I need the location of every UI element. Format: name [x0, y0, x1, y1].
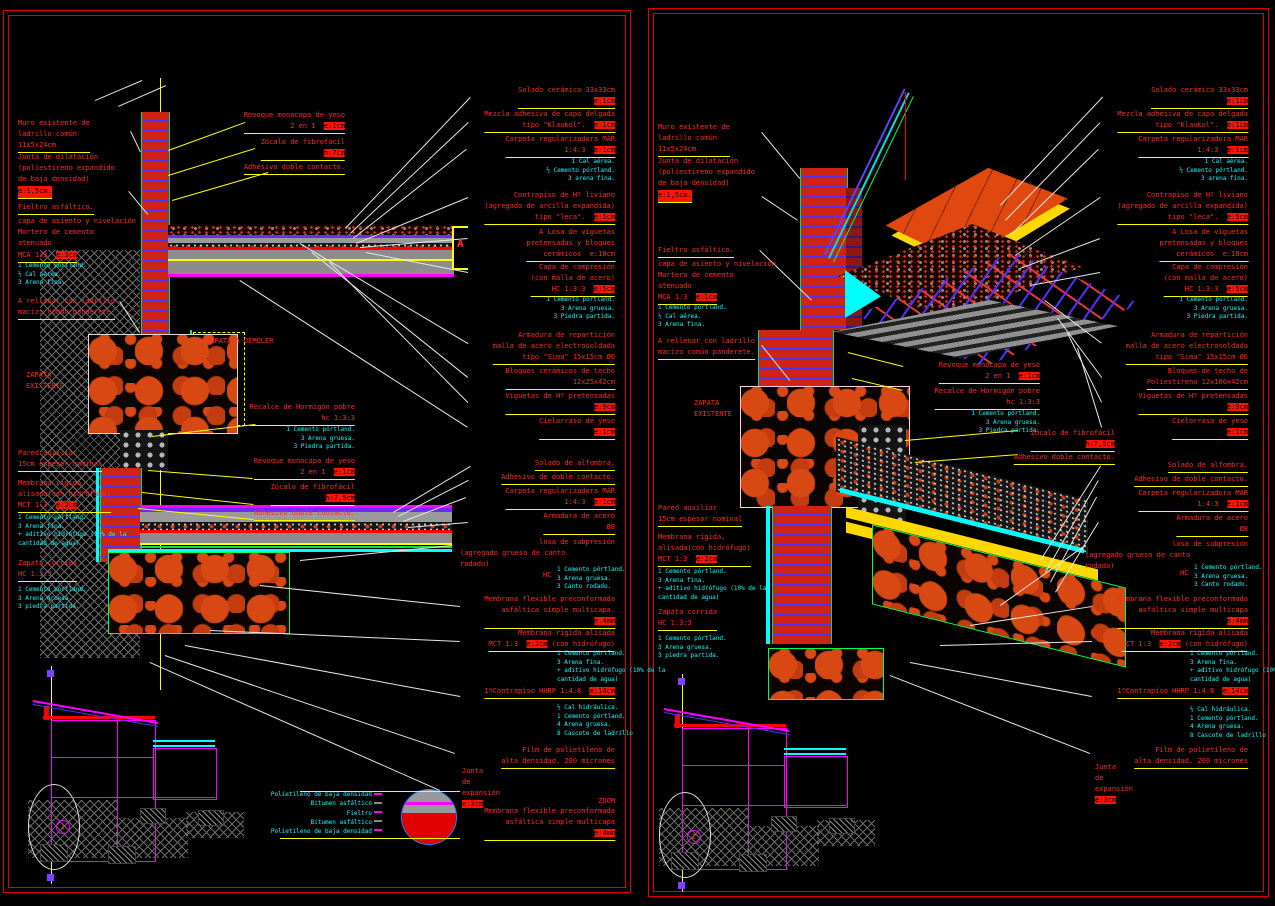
drawing-shape	[168, 274, 454, 277]
mini-sketch-part	[108, 846, 136, 864]
mini-sketch-part	[51, 797, 215, 798]
annotation: 1 Cemento pórtland. 3 Arena fina. + adit…	[18, 514, 126, 548]
highlighted-value: e:9cm	[594, 403, 615, 411]
annotation: Muro existente de ladrillo común 11x5x24…	[658, 122, 730, 157]
mini-sketch-part	[51, 757, 154, 758]
annotation: Junta de dilatación (poliestireno expand…	[658, 156, 755, 189]
annotation: ZAPATA EXISTENTE	[26, 370, 64, 392]
highlighted-value: e:14cm	[590, 687, 615, 695]
annotation: Zócalo de fibrofácil h:7,5cm	[1031, 428, 1115, 452]
annotation: Capa de compresión (con malla de acero) …	[1164, 262, 1248, 297]
highlighted-value: h:7cm	[324, 149, 345, 157]
annotation: Film de polietileno de alta densidad. 20…	[501, 745, 615, 769]
annotation: ½ Cal hidráulica. 1 Cemento pórtland. 4 …	[1190, 706, 1266, 740]
annotation: 1 Cal aérea. ½ Cemento pórtland. 3 arena…	[1179, 158, 1248, 184]
annotation: 1 Cemento pórtland. 3 Arena fina. + adit…	[557, 650, 665, 684]
annotation: A Losa de viguetas pretensadas y bloques…	[1159, 227, 1248, 262]
drawing-shape	[401, 789, 457, 845]
highlighted-value: e:4mm	[594, 617, 615, 625]
annotation: Adhesivo de doble contacto.	[501, 472, 615, 485]
annotation: Membrana rígida alisada MCT 1:3 e:2cm (c…	[489, 628, 615, 652]
highlighted-value: e:1cm	[1227, 428, 1248, 436]
annotation: Polietileno de baja densidad Bitumen asf…	[271, 790, 372, 836]
annotation: 1 Cemento pórtland. ½ Cal aérea. 3 Arena…	[18, 262, 87, 288]
mini-sketch-part	[682, 765, 785, 766]
mini-sketch-part	[198, 810, 224, 826]
drawing-shape	[800, 168, 848, 330]
annotation: Muro existente de ladrillo común 11x5x24…	[18, 118, 90, 153]
mini-sketch-part	[47, 874, 54, 881]
annotation: Revoque monocapa de yeso 2 en 1 e:1cm	[939, 360, 1040, 384]
drawing-shape	[141, 232, 170, 334]
drawing-shape	[452, 226, 454, 270]
annotation: Contrapiso de Hº liviano (agregado de ar…	[484, 190, 615, 225]
annotation: (agregado grueso de canto rodado)	[1085, 550, 1190, 572]
highlighted-value: e:5cm	[594, 285, 615, 293]
drawing-shape	[108, 552, 290, 634]
mini-sketch-part	[784, 753, 846, 755]
annotation: Junta de dilatación (poliestireno expand…	[18, 152, 115, 185]
annotation: 1 Cemento pórtland. 3 Arena fina. + adit…	[658, 568, 766, 602]
annotation: ZAPATA EXISTENTE	[694, 398, 732, 420]
annotation: Zapata corrida HC 1:3:3	[658, 607, 717, 631]
annotation: Viguetas de Hº pretensadas e:9cm	[1138, 391, 1248, 415]
annotation: Recalce de Hormigón pobre hc 1:3:3	[250, 402, 355, 426]
drawing-shape	[374, 820, 382, 822]
annotation: A	[457, 238, 464, 249]
annotation: Carpeta regularizadora MAR 1:4:3 e:1cm	[505, 486, 615, 510]
mini-sketch-part	[47, 670, 54, 677]
annotation: ZAPATA A DEMOLER	[206, 336, 273, 347]
drawing-shape	[772, 506, 832, 644]
annotation: Adhesivo de doble contacto.	[1134, 474, 1248, 487]
annotation: 1 Cemento pórtland. 3 Arena gruesa. 3 Pi…	[1179, 296, 1248, 322]
drawing-shape	[374, 811, 382, 813]
highlighted-value: e:14cm	[1223, 687, 1248, 695]
annotation: Armadura de acero Ø8	[1176, 513, 1248, 537]
highlighted-value: e:1cm	[334, 468, 355, 476]
annotation: Carpeta regularizadora MAR 1:4:3 e:1cm	[1138, 134, 1248, 158]
annotation: Membrana flexible preconformada asfáltic…	[484, 806, 615, 841]
highlighted-value: h:7,5cm	[325, 494, 355, 502]
annotation: Solado de alfombra.	[535, 458, 615, 471]
annotation: A Losa de viguetas pretensadas y bloques…	[526, 227, 615, 262]
annotation: Junta de expansión e:3cm	[1095, 762, 1133, 806]
drawing-shape	[452, 226, 468, 228]
annotation: Capa de compresión (con malla de acero) …	[531, 262, 615, 297]
annotation: Zócalo de fibrofácil h:7cm	[261, 137, 345, 161]
annotation: Fieltro asfáltico.	[658, 245, 734, 258]
annotation: A rellenar con ladrillo macizo común pan…	[658, 336, 755, 360]
highlighted-value: e:2cm	[1159, 640, 1180, 648]
annotation: losa de subpresión	[1172, 539, 1248, 550]
mini-sketch-part	[678, 678, 685, 685]
annotation: Membrana rígida, alisada(con hidrófugo) …	[658, 532, 751, 567]
annotation: Membrana rígida, alisada(con hidrófugo) …	[18, 478, 111, 513]
annotation: Revoque monocapa de yeso 2 en 1 e:1cm	[254, 456, 355, 480]
mini-sketch-part	[682, 805, 846, 806]
annotation: Revoque monocapa de yeso 2 en 1 e:1cm	[244, 110, 345, 134]
annotation: 1 Cemento pórtland. 3 Arena gruesa. 3 pi…	[18, 586, 87, 612]
annotation: Zócalo de fibrofácil h:7,5cm	[271, 482, 355, 506]
mini-sketch-part	[659, 792, 711, 878]
annotation: Membrana flexible preconformada asfáltic…	[1117, 594, 1248, 629]
highlighted-value: e:3cm	[56, 251, 77, 259]
annotation: Junta de expansión e:3cm	[462, 766, 500, 810]
mini-sketch-part	[153, 740, 215, 742]
annotation: losa de subpresión	[539, 537, 615, 548]
mini-sketch-part	[784, 756, 848, 808]
drawing-shape	[141, 112, 170, 232]
highlighted-value: e:4mm	[594, 829, 615, 837]
annotation: 1 Cemento pórtland. 3 Arena gruesa. 3 Pi…	[546, 296, 615, 322]
leader-line	[905, 92, 906, 180]
annotation: Cielorraso de yeso e:1cm	[539, 416, 615, 440]
cad-sheet: Muro existente de ladrillo común 11x5x24…	[0, 0, 1275, 906]
highlighted-value: e:2cm	[696, 555, 717, 563]
annotation: 1 Cal aérea. ½ Cemento pórtland. 3 arena…	[546, 158, 615, 184]
highlighted-value: e:1cm	[1227, 146, 1248, 154]
annotation: Armadura de repartición malla de acero e…	[493, 330, 615, 365]
mini-sketch-part	[153, 748, 217, 800]
mini-sketch-part	[153, 745, 215, 747]
annotation: Membrana rígida alisada MCT 1:3 e:2cm (c…	[1122, 628, 1248, 652]
detail-marker-2: 2	[687, 830, 701, 844]
mini-sketch-part	[771, 816, 797, 832]
annotation: capa de asiento y nivelación Mortero de …	[18, 216, 136, 249]
annotation: capa de asiento y nivelación Mortero de …	[658, 259, 776, 292]
highlighted-value: e:2cm	[526, 640, 547, 648]
annotation: Carpeta regularizadora MAR 1:4:3 e:1cm	[1138, 488, 1248, 512]
drawing-shape	[758, 330, 834, 388]
mini-sketch-part	[739, 854, 767, 872]
annotation: 1 Cemento pórtland. 3 Arena gruesa. 3 Ca…	[557, 566, 626, 592]
annotation: Mezcla adhesiva de capa delgada tipo "Kl…	[484, 109, 615, 133]
annotation: HC	[1180, 568, 1188, 579]
highlighted-value: e:4mm	[1227, 617, 1248, 625]
drawing-shape	[768, 648, 884, 700]
annotation: Pared auxiliar 15cm espesor nominal	[18, 448, 102, 472]
annotation: Viguetas de Hº pretensadas e:9cm	[505, 391, 615, 415]
annotation: 1 Cemento pórtland. 3 Arena gruesa. 3 pi…	[658, 635, 727, 661]
highlighted-value: e:1cm	[594, 97, 615, 105]
annotation: Solado cerámico 33x33cm e:1cm	[1151, 85, 1248, 109]
detail-marker-1: 1	[56, 820, 70, 834]
annotation: Contrapiso de Hº liviano (agregado de ar…	[1117, 190, 1248, 225]
annotation: A rellenar con ladrillo macizo común pan…	[18, 296, 115, 320]
annotation: Carpeta regularizadora MAR 1:4:3 e:1cm	[505, 134, 615, 158]
annotation: Zapata corrida HC 1:3:3	[18, 558, 77, 582]
annotation: 1 Cemento pórtland. 3 Arena gruesa. 3 Pi…	[286, 426, 355, 452]
highlighted-value: e:1cm	[594, 121, 615, 129]
highlighted-value: e:1cm	[1227, 97, 1248, 105]
annotation: e:1,5cm.	[18, 186, 52, 199]
highlighted-value: e:1cm	[594, 428, 615, 436]
highlighted-value: e:2cm	[56, 501, 77, 509]
mini-sketch-part	[829, 818, 855, 834]
highlighted-value: h:7,5cm	[1085, 440, 1115, 448]
highlighted-value: e:5cm	[1227, 285, 1248, 293]
highlighted-value: e:3cm	[462, 800, 483, 808]
annotation: 1 Cemento pórtland. 3 Arena gruesa. 3 Ca…	[1194, 564, 1263, 590]
annotation: Bloques de techo de Poliestireno 12x100x…	[1147, 366, 1248, 390]
mini-sketch-part	[678, 882, 685, 889]
drawing-shape	[168, 225, 454, 235]
drawing-shape	[88, 334, 238, 434]
drawing-shape	[280, 838, 460, 839]
drawing-shape	[140, 533, 452, 543]
annotation: Adhesivo doble contacto.	[244, 162, 345, 175]
annotation: Mezcla adhesiva de capa delgada tipo "Kl…	[1117, 109, 1248, 133]
annotation: 1 Cemento pórtland. 3 Arena gruesa. 3 Pi…	[971, 410, 1040, 436]
highlighted-value: e:1cm	[696, 293, 717, 301]
drawing-shape	[374, 793, 382, 795]
highlighted-value: e:1cm	[594, 146, 615, 154]
highlighted-value: e:1cm	[1227, 121, 1248, 129]
annotation: Film de polietileno de alta densidad. 20…	[1134, 745, 1248, 769]
annotation: 1ºContrapiso HHRP 1:4:8 e:14cm	[484, 686, 615, 699]
annotation: Armadura de acero Ø8	[543, 511, 615, 535]
annotation: e:1,5cm.	[658, 190, 692, 203]
drawing-shape	[766, 506, 770, 644]
annotation: ½ Cal hidráulica. 1 Cemento pórtland. 4 …	[557, 704, 633, 738]
annotation: Pared auxiliar 15cm espesor nominal	[658, 503, 742, 527]
annotation: 1ºContrapiso HHRP 1:4:8 e:14cm	[1117, 686, 1248, 699]
annotation: 1 Cemento pórtland. 3 Arena fina. + adit…	[1190, 650, 1275, 684]
highlighted-value: e:5cm	[1227, 213, 1248, 221]
mini-sketch-part	[140, 808, 166, 824]
highlighted-value: e:1cm	[594, 498, 615, 506]
highlighted-value: e:3cm	[1095, 796, 1116, 804]
drawing-shape	[140, 546, 452, 548]
annotation: Adhesivo doble contacto.	[1014, 452, 1115, 465]
annotation: Bloques cerámicos de techo 12x25x42cm	[505, 366, 615, 390]
annotation: Fieltro asfáltico.	[18, 202, 94, 215]
drawing-shape	[120, 430, 168, 470]
annotation: 1 Cemento pórtland. ½ Cal aérea. 3 Arena…	[658, 304, 727, 330]
drawing-shape	[140, 522, 452, 530]
annotation: Recalce de Hormigón pobre hc 1:3:3	[935, 386, 1040, 410]
highlighted-value: e:9cm	[1227, 403, 1248, 411]
annotation: (agregado grueso de canto rodado)	[460, 548, 565, 570]
annotation: Solado de alfombra.	[1168, 460, 1248, 473]
mini-sketch-part	[784, 748, 846, 750]
annotation: HC	[543, 570, 551, 581]
highlighted-value: e:5cm	[594, 213, 615, 221]
annotation: Adhesivo doble contacto.	[254, 508, 355, 521]
annotation: Armadura de repartición malla de acero e…	[1126, 330, 1248, 365]
annotation: Membrana flexible preconformada asfáltic…	[484, 594, 615, 629]
highlighted-value: e:1cm	[1019, 372, 1040, 380]
annotation: Cielorraso de yeso e:1cm	[1172, 416, 1248, 440]
annotation: Solado cerámico 33x33cm e:1cm	[518, 85, 615, 109]
drawing-shape	[140, 543, 452, 545]
drawing-shape	[374, 802, 382, 804]
highlighted-value: e:1cm	[324, 122, 345, 130]
highlighted-value: e:1cm	[1227, 500, 1248, 508]
mini-sketch-part	[28, 784, 80, 870]
drawing-shape	[374, 829, 382, 831]
